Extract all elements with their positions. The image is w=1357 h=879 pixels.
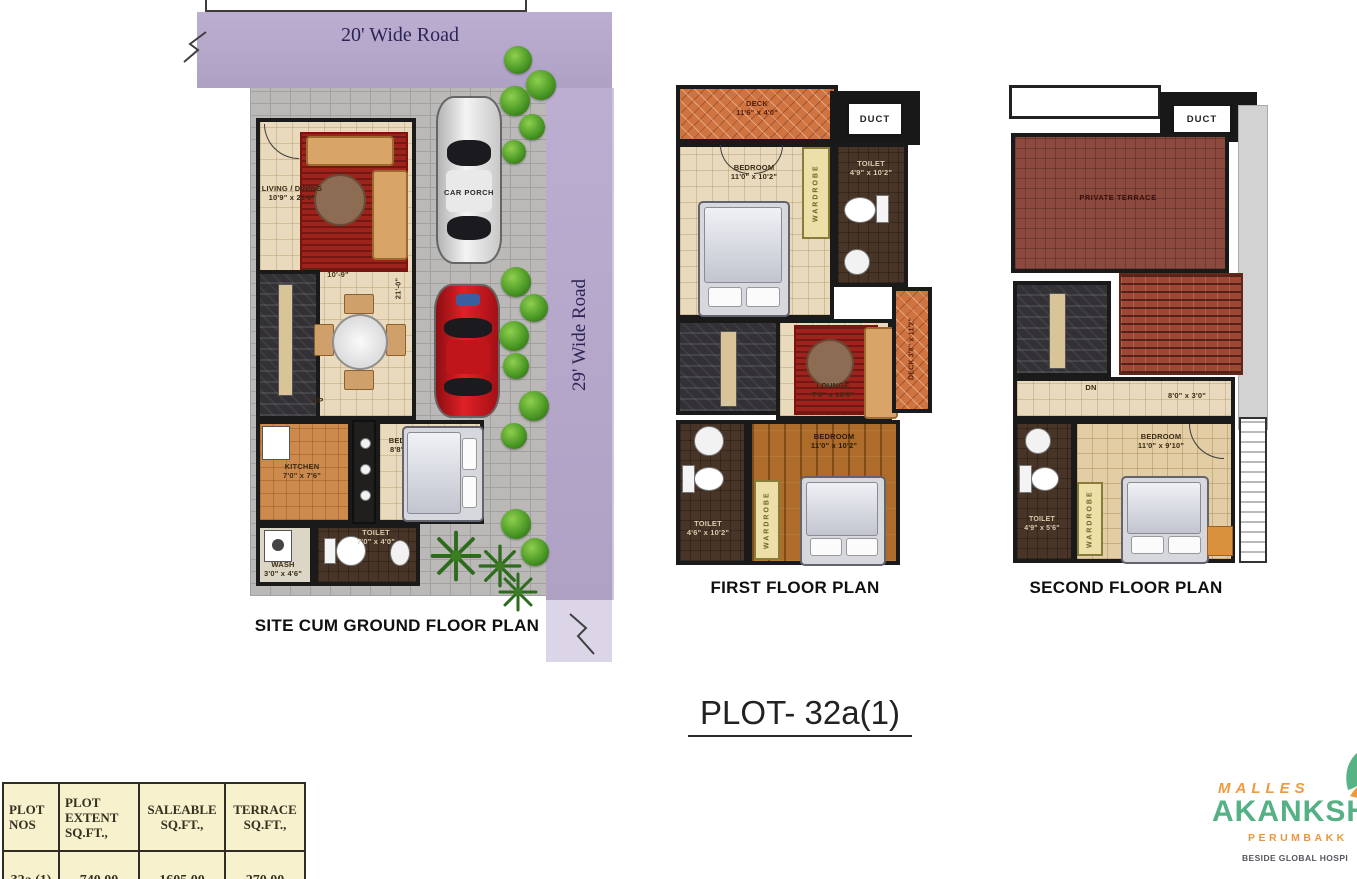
plot-table-wrap: PLOT NOS PLOT EXTENT SQ.FT., SALEABLE SQ… xyxy=(2,782,306,879)
open-parapet xyxy=(1009,85,1161,119)
star-plant xyxy=(430,530,482,582)
road-right-label: 29' Wide Road xyxy=(569,279,591,391)
duct-box: DUCT xyxy=(846,101,904,137)
windshield-tint xyxy=(456,294,480,306)
dim-height-label: 21'-0" xyxy=(394,269,403,309)
bush xyxy=(520,294,548,322)
second-plan-caption: SECOND FLOOR PLAN xyxy=(995,578,1257,598)
white-car xyxy=(436,96,502,264)
sink xyxy=(844,249,870,275)
dining-chair xyxy=(386,324,406,356)
road-top-label: 20' Wide Road xyxy=(280,24,520,47)
stair-rail xyxy=(1049,293,1066,369)
bush xyxy=(501,423,527,449)
toilet-tank xyxy=(876,195,889,223)
first-bedroom-bottom-label: BEDROOM 11'0" x 10'2" xyxy=(784,432,884,450)
bush xyxy=(501,509,531,539)
wardrobe: WARDROBE xyxy=(754,480,780,560)
stove-burner xyxy=(360,490,371,501)
deck-top: DECK 11'6" x 4'0" xyxy=(676,85,838,143)
sofa xyxy=(372,170,408,260)
living-label: LIVING / DINING 10'9" x 21'0" xyxy=(260,184,324,202)
wardrobe: WARDROBE xyxy=(802,147,830,239)
bush xyxy=(502,140,526,164)
builder-logo: MALLES AKANKSH PERUMBAKK BESIDE GLOBAL H… xyxy=(1206,740,1357,879)
bed-pillow xyxy=(462,476,477,508)
second-floor-plan: DUCT PRIVATE TERRACE DN 8'0" x 3'0" BEDR… xyxy=(1003,85,1273,577)
road-break-icon xyxy=(566,612,596,656)
bush xyxy=(519,114,545,140)
first-plan-caption: FIRST FLOOR PLAN xyxy=(660,578,930,598)
sink xyxy=(694,426,724,456)
plot-table: PLOT NOS PLOT EXTENT SQ.FT., SALEABLE SQ… xyxy=(2,782,306,879)
bed-pillow xyxy=(462,438,477,470)
toilet-bowl xyxy=(694,467,724,491)
toilet-bowl xyxy=(844,197,876,223)
windshield xyxy=(447,140,491,166)
washing-machine xyxy=(264,530,292,562)
cell-plot-extent: 740.00 xyxy=(59,851,139,879)
first-toilet-top-label: TOILET 4'9" x 10'2" xyxy=(838,159,904,177)
sloped-roof xyxy=(1119,273,1243,375)
up-label: UP xyxy=(716,399,736,408)
cell-terrace: 270.00 xyxy=(225,851,305,879)
up-label: UP xyxy=(308,396,328,405)
bush xyxy=(504,46,532,74)
toilet-bowl xyxy=(1031,467,1059,491)
bed-pillow xyxy=(746,287,780,307)
logo-tagline: BESIDE GLOBAL HOSPI xyxy=(1242,853,1348,863)
wardrobe: WARDROBE xyxy=(1077,482,1103,556)
bed-pillow xyxy=(1168,536,1201,554)
corridor-dim-label: 8'0" x 3'0" xyxy=(1151,391,1223,400)
dining-chair xyxy=(344,370,374,390)
road-break-icon xyxy=(182,30,208,64)
fridge xyxy=(262,426,290,460)
bush xyxy=(519,391,549,421)
car-roof xyxy=(446,340,490,374)
bed-pillow xyxy=(708,287,742,307)
logo-name: AKANKSH xyxy=(1212,795,1357,829)
bed-pillow xyxy=(1131,536,1164,554)
side-table xyxy=(1207,526,1233,556)
toilet-tank xyxy=(324,538,336,564)
kitchen-label: KITCHEN 7'0" x 7'6" xyxy=(262,462,342,480)
bed-blanket xyxy=(1127,482,1201,534)
second-bedroom-label: BEDROOM 11'0" x 9'10" xyxy=(1111,432,1211,450)
bush xyxy=(503,353,529,379)
first-bedroom-top-label: BEDROOM 11'0" x 10'2" xyxy=(704,163,804,181)
star-plant xyxy=(498,572,538,612)
windshield xyxy=(444,318,492,338)
ground-plan-caption: SITE CUM GROUND FLOOR PLAN xyxy=(252,616,542,636)
col-saleable: SALEABLE SQ.FT., xyxy=(139,783,225,851)
bush xyxy=(500,86,530,116)
plot-title-text: PLOT- 32a(1) xyxy=(688,694,912,737)
washer-door xyxy=(272,539,284,551)
floor-plan-page: 20' Wide Road 29' Wide Road LIVING / DIN… xyxy=(0,0,1357,879)
deck-top-label: DECK 11'6" x 4'0" xyxy=(720,99,794,117)
logo-location: PERUMBAKK xyxy=(1248,832,1348,844)
private-terrace xyxy=(1011,133,1229,273)
cell-plot-no: 32a (1) xyxy=(3,851,59,879)
side-path xyxy=(1238,105,1268,430)
terrace-label: PRIVATE TERRACE xyxy=(1033,193,1203,202)
table-header-row: PLOT NOS PLOT EXTENT SQ.FT., SALEABLE SQ… xyxy=(3,783,305,851)
cell-saleable: 1605.00 xyxy=(139,851,225,879)
bed-pillow xyxy=(810,538,842,556)
bed xyxy=(800,476,886,566)
ground-toilet-label: TOILET 7'0" x 4'0" xyxy=(354,528,398,546)
col-terrace: TERRACE SQ.FT., xyxy=(225,783,305,851)
plot-title: PLOT- 32a(1) xyxy=(660,694,940,737)
dn-label: DN xyxy=(1081,383,1101,392)
dining-chair xyxy=(344,294,374,314)
col-plot-extent: PLOT EXTENT SQ.FT., xyxy=(59,783,139,851)
sofa xyxy=(306,136,394,166)
bush xyxy=(526,70,556,100)
bed-pillow xyxy=(846,538,878,556)
bush xyxy=(501,267,531,297)
duct-box: DUCT xyxy=(1171,103,1233,135)
terrace-railing xyxy=(1239,417,1267,563)
first-toilet-bottom-label: TOILET 4'6" x 10'2" xyxy=(680,519,736,537)
red-car xyxy=(434,284,500,418)
bush xyxy=(521,538,549,566)
dining-table xyxy=(332,314,388,370)
first-floor-plan: DECK 11'6" x 4'0" DUCT BEDROOM 11'0" x 1… xyxy=(668,85,944,577)
dining-chair xyxy=(314,324,334,356)
stove-burner xyxy=(360,464,371,475)
car-porch-label: CAR PORCH xyxy=(438,188,500,197)
table-row: 32a (1) 740.00 1605.00 270.00 xyxy=(3,851,305,879)
bed-blanket xyxy=(704,207,782,283)
rear-window xyxy=(444,378,492,396)
coffee-table xyxy=(806,339,854,387)
bed-blanket xyxy=(407,432,461,514)
stair-rail xyxy=(720,331,737,407)
kitchen-counter xyxy=(352,420,376,524)
lounge-label: LOUNGE 7'0" x 10'6" xyxy=(794,381,872,399)
wash-label: WASH 3'0" x 4'6" xyxy=(258,560,308,578)
stove-burner xyxy=(360,438,371,449)
col-plot-nos: PLOT NOS xyxy=(3,783,59,851)
bed xyxy=(698,201,790,317)
neighbour-plot-strip xyxy=(205,0,527,12)
bed xyxy=(402,426,484,522)
bed xyxy=(1121,476,1209,564)
sink xyxy=(1025,428,1051,454)
bush xyxy=(499,321,529,351)
rear-window xyxy=(447,216,491,240)
second-toilet-label: TOILET 4'9" x 5'6" xyxy=(1015,515,1069,533)
bed-blanket xyxy=(806,482,878,536)
stair-rail xyxy=(278,284,293,396)
deck-right-label: DECK 3'8" x 11'2" xyxy=(908,309,917,389)
